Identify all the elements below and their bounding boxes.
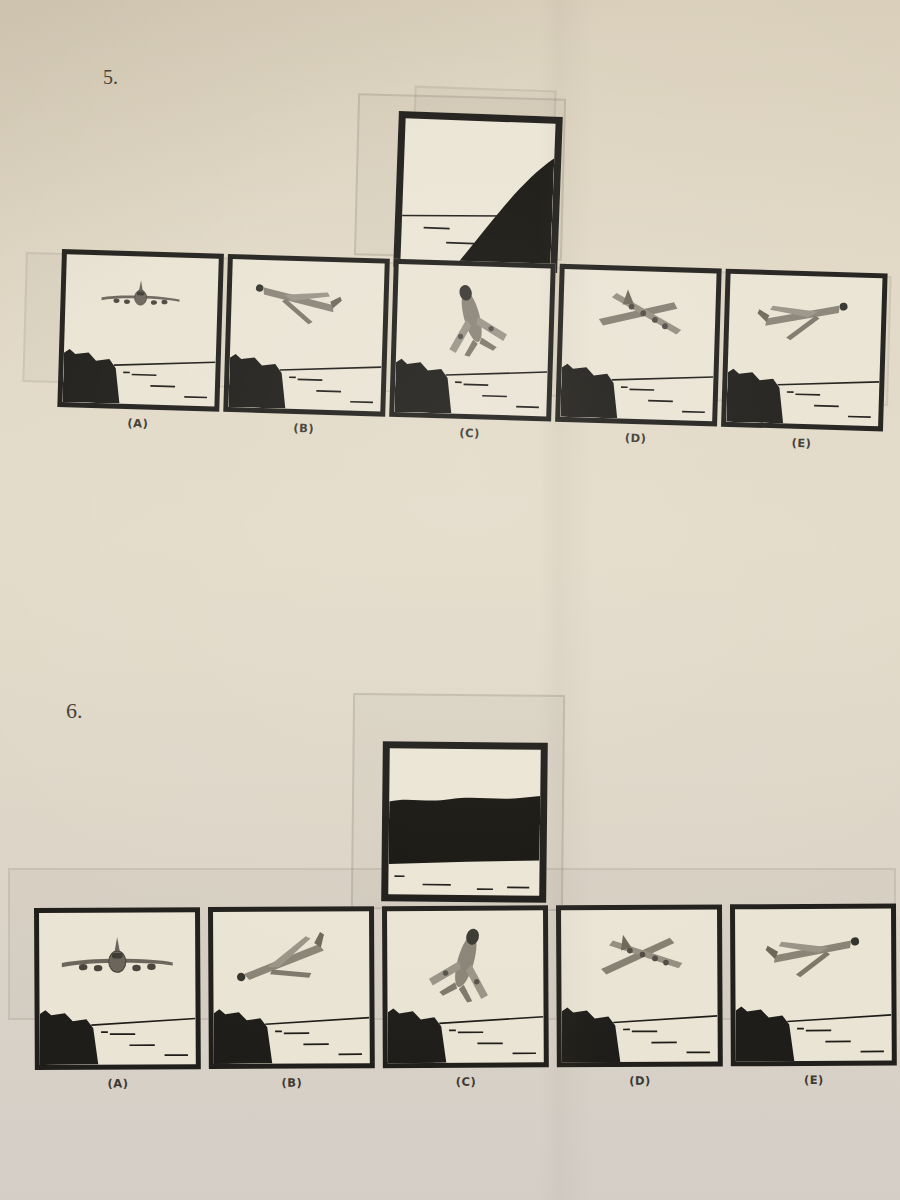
option-label: (C) [456,1075,477,1089]
option-5e-frame [721,269,888,432]
question-5-stimulus-box [393,111,563,273]
option-5a-frame [57,249,224,412]
option-6e: (E) [730,903,897,1087]
question-6-stimulus-box [381,741,548,903]
plane-rear-banked-right-icon [583,920,693,985]
option-6c: (C) [382,905,549,1089]
question-6-options-row: (A) (B) (C) (D) (E) [34,903,897,1091]
option-5d-frame [555,264,722,427]
option-6d: (D) [556,904,723,1088]
cockpit-view-mountain-ridge-icon [388,748,541,896]
option-label: (A) [127,416,148,431]
plane-front-level-icon [53,928,181,993]
question-5-number: 5. [103,66,118,89]
option-5b-frame [223,254,390,417]
option-label: (E) [791,436,811,451]
question-6-number: 6. [66,698,83,724]
option-6b-frame [208,906,375,1069]
plane-front-level-icon [95,273,186,321]
option-6e-frame [730,903,897,1066]
option-6a-frame [34,907,201,1070]
option-5c: (C) [389,259,556,443]
option-label: (D) [625,431,647,446]
option-6c-frame [382,905,549,1068]
option-5c-frame [389,259,556,422]
option-5a: (A) [57,249,224,433]
option-6d-frame [556,904,723,1067]
cockpit-view-coastline-hill-right-icon [400,118,555,265]
option-label: (C) [459,426,480,441]
option-label: (B) [293,421,314,436]
question-5-options-row: (A) (B) (C) (D) (E) [57,249,888,452]
option-label: (B) [281,1076,302,1090]
option-5d: (D) [554,264,721,448]
option-5b: (B) [223,254,390,438]
option-6a: (A) [34,907,201,1091]
option-label: (A) [107,1077,128,1091]
option-6b: (B) [208,906,375,1090]
option-5e: (E) [720,269,887,453]
option-label: (D) [629,1074,651,1088]
option-label: (E) [804,1073,824,1087]
